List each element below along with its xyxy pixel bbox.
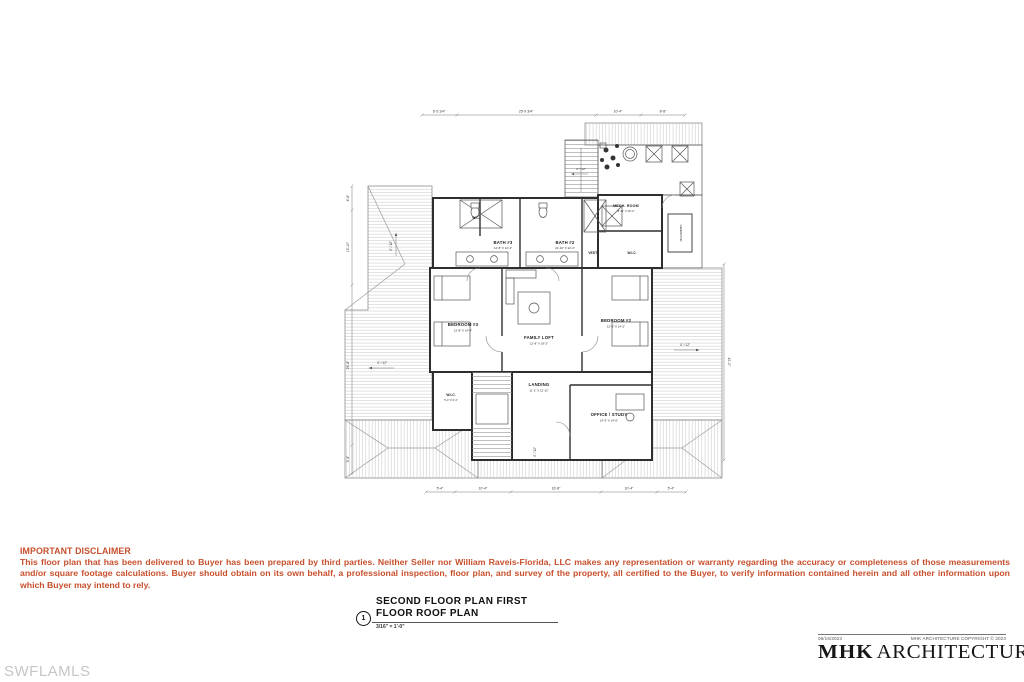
room-dims-bath3: 12'-8" X 12'-4" bbox=[494, 246, 512, 250]
drawing-sheet: GENERATOR W.C. BATH #3 12'-8" X 12'-4" B… bbox=[0, 0, 1024, 682]
dim-left-1: 13'-10" bbox=[346, 241, 350, 252]
dim-top-0: 6'-5 1/4" bbox=[433, 110, 446, 114]
room-dims-wic-lower: 5'-4" X 6'-4" bbox=[444, 398, 458, 402]
drawing-number-badge: 1 bbox=[356, 611, 371, 626]
dim-bottom-3: 10'-4" bbox=[625, 487, 634, 491]
room-dims-landing: 11'-2" X 12'-11" bbox=[529, 389, 548, 393]
logo-mhk: MHK bbox=[818, 640, 874, 663]
room-dims-bedroom3: 12'-8" X 14'-4" bbox=[454, 329, 472, 333]
dim-bottom-4: 5'-4" bbox=[668, 487, 676, 491]
drawing-number: 1 bbox=[362, 615, 366, 622]
room-label-wic-upper: W.I.C. bbox=[627, 251, 636, 255]
dim-left-3: 5'-4" bbox=[346, 455, 350, 463]
drawing-title-line2: FLOOR ROOF PLAN bbox=[376, 608, 527, 620]
dim-left-0: 4'-6" bbox=[346, 194, 350, 202]
disclaimer-block: IMPORTANT DISCLAIMER This floor plan tha… bbox=[20, 546, 1010, 591]
slope-label-right: 4" / 12" bbox=[680, 343, 690, 347]
slope-label-left-lower: 4" / 12" bbox=[377, 361, 387, 365]
drawing-title: SECOND FLOOR PLAN FIRST FLOOR ROOF PLAN bbox=[376, 596, 527, 619]
room-label-generator: GENERATOR bbox=[679, 225, 683, 242]
floor-plan-svg: GENERATOR W.C. BATH #3 12'-8" X 12'-4" B… bbox=[330, 96, 732, 516]
title-underline bbox=[372, 622, 558, 623]
logo-architecture: ARCHITECTURE bbox=[877, 640, 1024, 663]
floor-plan-drawing: GENERATOR W.C. BATH #3 12'-8" X 12'-4" B… bbox=[330, 96, 732, 516]
room-dims-office: 14'-3" X 14'-6" bbox=[600, 419, 618, 423]
dim-bottom-2: 16'-8" bbox=[552, 487, 561, 491]
dim-left-2: 29'-8" bbox=[346, 360, 350, 369]
dim-bottom-0: 5'-4" bbox=[437, 487, 445, 491]
mls-watermark: SWFLAMLS bbox=[4, 663, 91, 680]
room-label-mech: MECH. ROOM bbox=[613, 204, 639, 208]
room-label-wc: W.C. bbox=[472, 216, 479, 220]
dim-top-2: 10'-4" bbox=[614, 110, 623, 114]
room-dims-family-loft: 12'-8" X 19'-2" bbox=[530, 342, 548, 346]
slope-label-left-upper: 4" / 12" bbox=[389, 241, 393, 251]
room-label-bedroom3: BEDROOM #3 bbox=[448, 322, 479, 327]
disclaimer-heading: IMPORTANT DISCLAIMER bbox=[20, 546, 1010, 556]
room-label-vest: VEST. bbox=[588, 251, 598, 255]
dim-right-0: 41'-0" bbox=[727, 358, 731, 367]
dim-top-3: 8'-8" bbox=[660, 110, 668, 114]
room-label-landing: LANDING bbox=[529, 382, 550, 387]
slope-label-bottom: 4" / 12" bbox=[533, 447, 537, 457]
drawing-title-line1: SECOND FLOOR PLAN FIRST bbox=[376, 596, 527, 608]
slope-label-deck: 3" / 12" bbox=[576, 167, 586, 171]
room-dims-mech: 8'-11" X 10'-4" bbox=[618, 209, 635, 213]
dim-bottom-1: 10'-4" bbox=[479, 487, 488, 491]
room-dims-bedroom2: 12'-8" X 14'-2" bbox=[607, 325, 625, 329]
room-label-bath2: BATH #2 bbox=[556, 240, 575, 245]
drawing-scale: 3/16" = 1'-0" bbox=[376, 624, 405, 630]
room-label-office: OFFICE / STUDY bbox=[591, 412, 628, 417]
dim-top-1: 25'-9 3/4" bbox=[519, 110, 534, 114]
room-label-family-loft: FAMILY LOFT bbox=[524, 335, 554, 340]
room-label-bath3: BATH #3 bbox=[494, 240, 513, 245]
disclaimer-body: This floor plan that has been delivered … bbox=[20, 557, 1010, 591]
room-dims-bath2: 12'-10" X 12'-4" bbox=[555, 246, 575, 250]
architect-logo-block: 06/16/2023 MHK ARCHITECTURE COPYRIGHT © … bbox=[818, 634, 1006, 663]
architect-logo: MHKARCHITECTURE bbox=[818, 641, 1006, 662]
room-label-wic-lower: W.I.C. bbox=[446, 393, 455, 397]
room-label-bedroom2: BEDROOM #2 bbox=[601, 318, 632, 323]
